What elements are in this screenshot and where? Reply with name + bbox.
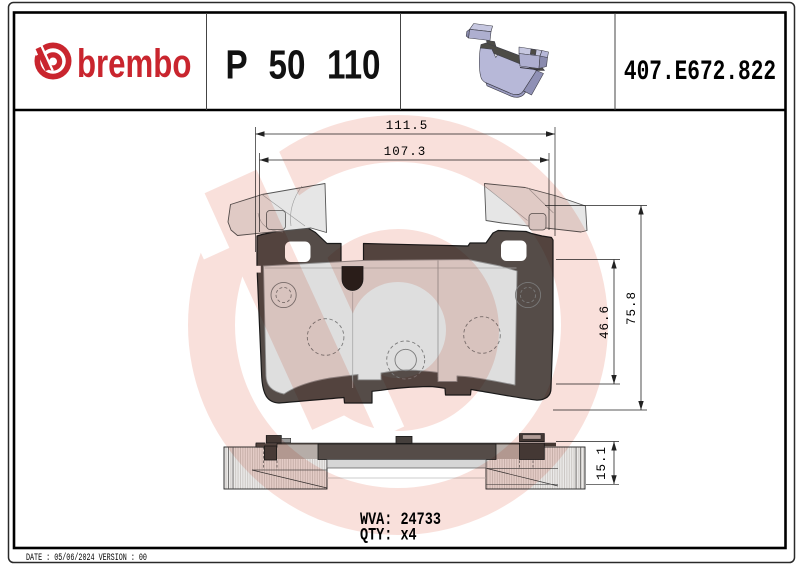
svg-text:DATE : 05/06/2024 VERSION : 00: DATE : 05/06/2024 VERSION : 00 [26,552,147,564]
